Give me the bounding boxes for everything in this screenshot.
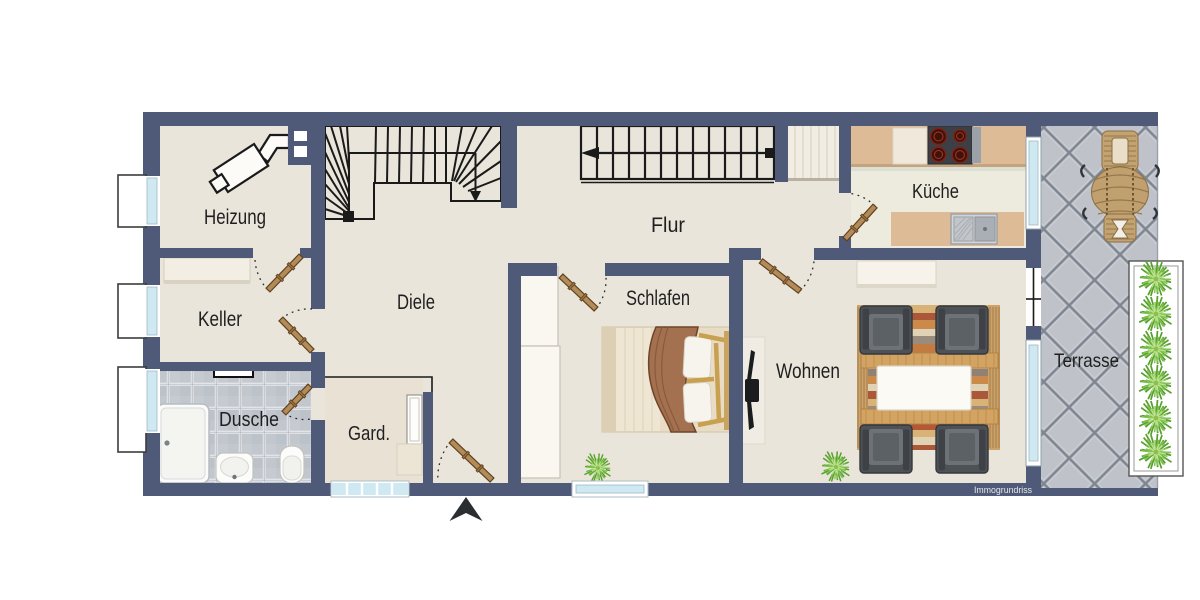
svg-text:Wohnen: Wohnen [776, 360, 840, 383]
svg-text:Schlafen: Schlafen [626, 287, 690, 310]
svg-text:Diele: Diele [397, 291, 435, 314]
svg-text:Terrasse: Terrasse [1054, 350, 1119, 372]
svg-text:Flur: Flur [651, 214, 685, 237]
svg-text:Küche: Küche [912, 181, 959, 203]
svg-text:Keller: Keller [198, 308, 242, 331]
svg-text:Immogrundriss: Immogrundriss [974, 485, 1032, 496]
svg-text:Dusche: Dusche [219, 409, 279, 431]
svg-text:Gard.: Gard. [348, 423, 390, 445]
svg-text:Heizung: Heizung [204, 206, 266, 229]
